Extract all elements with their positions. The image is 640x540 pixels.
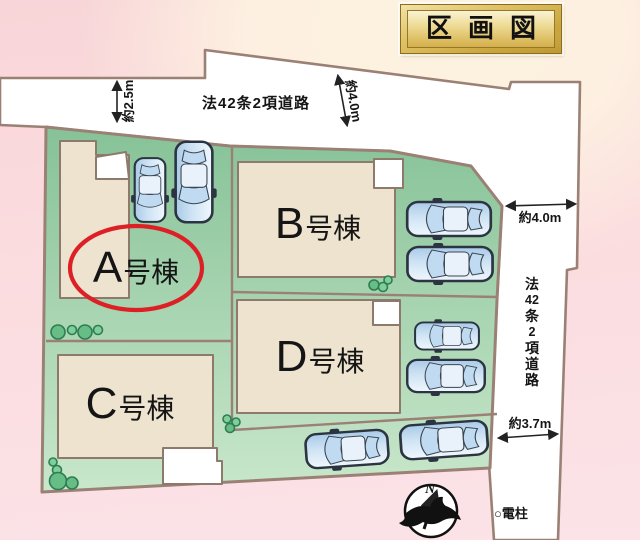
building-a-porch: [96, 152, 129, 179]
road-name-right: 法 42 条 2 項 道 路: [517, 276, 547, 388]
measurement-top-left: 約2.5m: [120, 72, 138, 130]
title-box: 区画図: [400, 4, 562, 54]
title-inner-panel: 区画図: [407, 10, 555, 48]
building-b-notch: [374, 159, 403, 188]
road-name-top: 法42条2項道路: [196, 92, 316, 113]
building-c-garage: [163, 448, 222, 484]
compass-north-letter: N: [425, 482, 435, 498]
measurement-right: 約4.0m: [504, 209, 576, 227]
building-d-notch: [373, 301, 400, 325]
plot-label-d: D号棟: [235, 330, 405, 384]
plot-label-a: A号棟: [51, 241, 221, 295]
plot-label-b: B号棟: [233, 197, 403, 251]
plot-label-c: C号棟: [45, 377, 215, 431]
plot-map-canvas: 区画図 法42条2項道路 約2.5m 約4.0m 約4.0m 約3.7m 法 4…: [0, 0, 640, 540]
page-title: 区画図: [426, 16, 552, 42]
utility-pole-label: ○電柱: [494, 503, 528, 522]
measurement-bottom-right: 約3.7m: [498, 415, 562, 433]
